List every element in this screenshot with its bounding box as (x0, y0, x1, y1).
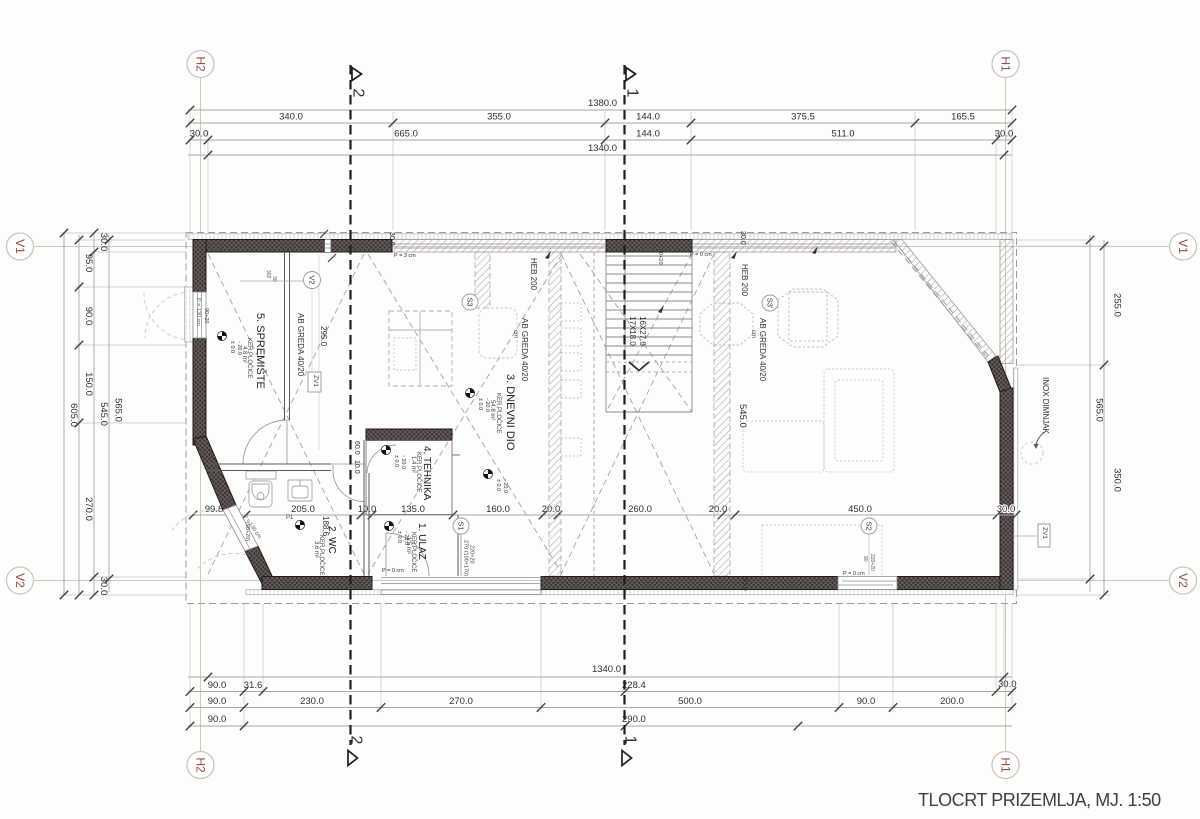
svg-text:605.0: 605.0 (68, 403, 79, 427)
svg-text:- 20.0: - 20.0 (236, 341, 242, 355)
svg-text:H1: H1 (999, 56, 1013, 72)
svg-text:565.0: 565.0 (1094, 398, 1105, 422)
svg-text:270.0: 270.0 (83, 497, 94, 521)
svg-text:± 0.0: ± 0.0 (396, 531, 402, 543)
svg-text:99.8: 99.8 (205, 504, 224, 515)
svg-text:511.0: 511.0 (831, 129, 854, 140)
svg-text:350.0: 350.0 (1112, 468, 1123, 492)
svg-text:AB GREDA 40/20: AB GREDA 40/20 (520, 318, 529, 382)
svg-text:450.0: 450.0 (848, 504, 872, 515)
svg-text:10.0: 10.0 (353, 460, 360, 474)
svg-text:P = 0 cm: P = 0 cm (843, 571, 865, 577)
svg-text:3.6 m²: 3.6 m² (313, 541, 319, 558)
svg-text:± 0.0: ± 0.0 (495, 479, 501, 491)
svg-text:10.0: 10.0 (358, 504, 377, 515)
svg-text:90.0: 90.0 (83, 307, 94, 326)
svg-text:P = 130 cm: P = 130 cm (195, 298, 201, 326)
svg-text:545.0: 545.0 (98, 402, 109, 426)
svg-text:500.0: 500.0 (678, 696, 702, 707)
svg-text:144.0: 144.0 (636, 112, 660, 123)
svg-text:30.0: 30.0 (741, 577, 748, 591)
svg-text:260.0: 260.0 (628, 504, 652, 515)
svg-text:INOX DIMNJAK: INOX DIMNJAK (1041, 377, 1050, 435)
svg-text:P = 0 cm: P = 0 cm (690, 252, 712, 258)
svg-text:KER.PLOČICE: KER.PLOČICE (495, 393, 502, 433)
svg-text:16X27.0: 16X27.0 (638, 316, 647, 346)
svg-text:ZV1: ZV1 (312, 375, 319, 387)
svg-text:144.0: 144.0 (636, 129, 660, 140)
svg-text:30: 30 (271, 276, 277, 282)
svg-text:V1: V1 (13, 239, 27, 254)
svg-text:95.0: 95.0 (83, 254, 94, 273)
svg-text:545.0: 545.0 (737, 404, 748, 428)
svg-text:V2: V2 (308, 275, 317, 284)
svg-text:230.0: 230.0 (300, 696, 324, 707)
svg-text:V2: V2 (1176, 573, 1190, 588)
svg-text:5. SPREMIŠTE: 5. SPREMIŠTE (254, 313, 267, 389)
svg-text:31.6: 31.6 (244, 680, 263, 691)
svg-text:30.0: 30.0 (998, 679, 1017, 690)
svg-text:302: 302 (265, 270, 271, 279)
svg-text:220+20: 220+20 (469, 545, 475, 564)
svg-text:200.0: 200.0 (940, 696, 964, 707)
svg-text:665.0: 665.0 (394, 129, 418, 140)
svg-text:90.0: 90.0 (857, 696, 876, 707)
svg-text:1.4 m²: 1.4 m² (410, 456, 416, 473)
svg-text:S1: S1 (457, 521, 466, 530)
svg-text:2: 2 (348, 736, 365, 745)
svg-text:S2: S2 (865, 521, 874, 530)
svg-text:± 0.0: ± 0.0 (229, 341, 235, 353)
svg-text:1380.0: 1380.0 (588, 98, 617, 109)
svg-text:220+20: 220+20 (869, 554, 875, 571)
svg-text:30.0: 30.0 (98, 233, 109, 252)
svg-text:H2: H2 (194, 56, 208, 72)
svg-text:30.0: 30.0 (995, 129, 1014, 140)
svg-text:565.0: 565.0 (113, 398, 124, 422)
svg-text:H2: H2 (194, 757, 208, 773)
svg-text:270 (100+170): 270 (100+170) (463, 540, 469, 576)
svg-text:ZV1: ZV1 (1041, 527, 1048, 539)
svg-text:cm: cm (512, 330, 518, 338)
svg-text:V1: V1 (1176, 239, 1190, 254)
svg-text:30.0: 30.0 (739, 231, 746, 245)
svg-text:188.6: 188.6 (321, 516, 330, 537)
svg-text:375.5: 375.5 (791, 112, 815, 123)
svg-text:TLOCRT PRIZEMLJA, MJ. 1:50: TLOCRT PRIZEMLJA, MJ. 1:50 (918, 790, 1161, 810)
svg-text:30.0: 30.0 (388, 232, 395, 246)
svg-text:S3': S3' (766, 298, 775, 309)
svg-text:205.0: 205.0 (291, 504, 315, 515)
svg-text:AB GREDA 40/20: AB GREDA 40/20 (758, 318, 767, 382)
svg-text:- 20.0: - 20.0 (400, 455, 406, 469)
svg-text:3. DNEVNI DIO: 3. DNEVNI DIO (504, 374, 516, 451)
svg-text:S3: S3 (466, 297, 475, 306)
svg-text:30.0: 30.0 (98, 577, 109, 596)
svg-text:90: 90 (862, 556, 868, 562)
svg-text:150.0: 150.0 (83, 372, 94, 396)
svg-text:cm: cm (750, 330, 756, 338)
svg-text:17X18.0: 17X18.0 (628, 316, 637, 346)
svg-text:P1: P1 (286, 515, 294, 521)
svg-text:2: 2 (350, 89, 367, 98)
svg-text:AB GREDA 40/20: AB GREDA 40/20 (296, 313, 305, 377)
svg-text:V2: V2 (13, 573, 27, 588)
svg-text:1: 1 (622, 736, 639, 745)
svg-text:H1: H1 (999, 757, 1013, 773)
svg-text:1340.0: 1340.0 (592, 664, 621, 675)
svg-text:1: 1 (624, 89, 641, 98)
svg-text:P = 3 cm: P = 3 cm (394, 253, 416, 259)
svg-text:165.5: 165.5 (951, 112, 975, 123)
svg-text:HEB 200: HEB 200 (740, 264, 749, 297)
svg-text:60.0: 60.0 (353, 441, 360, 455)
svg-text:P = 0 cm: P = 0 cm (382, 568, 404, 574)
svg-text:295.0: 295.0 (319, 326, 328, 347)
svg-text:220+20: 220+20 (657, 246, 663, 265)
svg-text:± 0.0: ± 0.0 (393, 455, 399, 467)
svg-text:1340.0: 1340.0 (588, 143, 617, 154)
svg-text:30.0: 30.0 (190, 129, 209, 140)
svg-text:90.0: 90.0 (208, 680, 227, 691)
svg-text:- 20.0: - 20.0 (484, 398, 490, 412)
svg-text:- 20.0: - 20.0 (502, 479, 508, 493)
svg-text:255.0: 255.0 (1112, 293, 1123, 317)
svg-text:± 0.0: ± 0.0 (477, 398, 483, 410)
svg-text:90+20: 90+20 (203, 308, 209, 323)
svg-text:355.0: 355.0 (487, 112, 511, 123)
svg-text:1. ULAZ: 1. ULAZ (416, 523, 427, 560)
svg-text:90.0: 90.0 (208, 696, 227, 707)
svg-text:4. TEHNIKA: 4. TEHNIKA (421, 446, 432, 501)
svg-text:340.0: 340.0 (279, 112, 303, 123)
svg-text:270.0: 270.0 (449, 696, 473, 707)
svg-text:160.0: 160.0 (486, 504, 510, 515)
svg-text:HEB 200: HEB 200 (529, 258, 538, 291)
svg-text:- 20.0: - 20.0 (403, 531, 409, 545)
svg-text:90.0: 90.0 (208, 714, 227, 725)
